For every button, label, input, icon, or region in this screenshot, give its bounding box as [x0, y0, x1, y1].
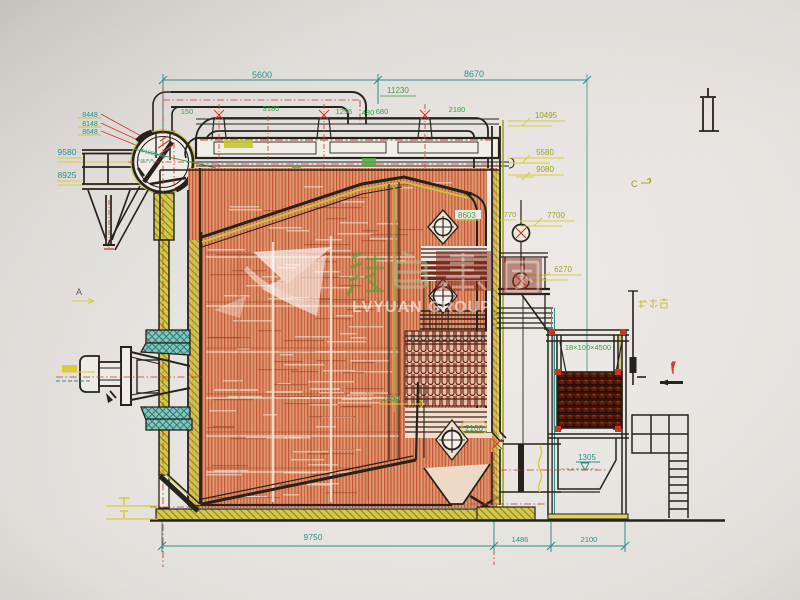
svg-text:11230: 11230 — [387, 86, 409, 95]
svg-text:7700: 7700 — [547, 211, 565, 220]
svg-text:680: 680 — [376, 107, 389, 116]
svg-text:9750: 9750 — [304, 532, 323, 542]
svg-text:2100: 2100 — [465, 424, 483, 433]
svg-text:9080: 9080 — [536, 165, 554, 174]
svg-text:10495: 10495 — [535, 111, 558, 120]
svg-text:5600: 5600 — [252, 70, 272, 80]
svg-text:2960: 2960 — [382, 394, 400, 403]
svg-text:LVYUAN GROUP: LVYUAN GROUP — [352, 299, 492, 316]
svg-text:150: 150 — [181, 107, 194, 116]
svg-text:2180: 2180 — [449, 105, 466, 114]
svg-text:C: C — [631, 179, 638, 189]
svg-text:770: 770 — [504, 210, 517, 219]
svg-text:2100: 2100 — [581, 535, 598, 544]
svg-text:9580: 9580 — [58, 147, 77, 157]
svg-text:1255: 1255 — [336, 107, 353, 116]
svg-text:6270: 6270 — [554, 265, 572, 274]
svg-text:3180: 3180 — [263, 104, 280, 113]
svg-text:A: A — [76, 287, 82, 297]
svg-text:1486: 1486 — [512, 535, 529, 544]
svg-text:480: 480 — [362, 108, 375, 117]
svg-text:5580: 5580 — [536, 148, 554, 157]
svg-text:8925: 8925 — [58, 170, 77, 180]
svg-text:8603: 8603 — [458, 211, 476, 220]
svg-text:8670: 8670 — [464, 69, 484, 79]
svg-text:1305: 1305 — [578, 453, 596, 462]
svg-text:18×100×4500: 18×100×4500 — [565, 343, 611, 352]
